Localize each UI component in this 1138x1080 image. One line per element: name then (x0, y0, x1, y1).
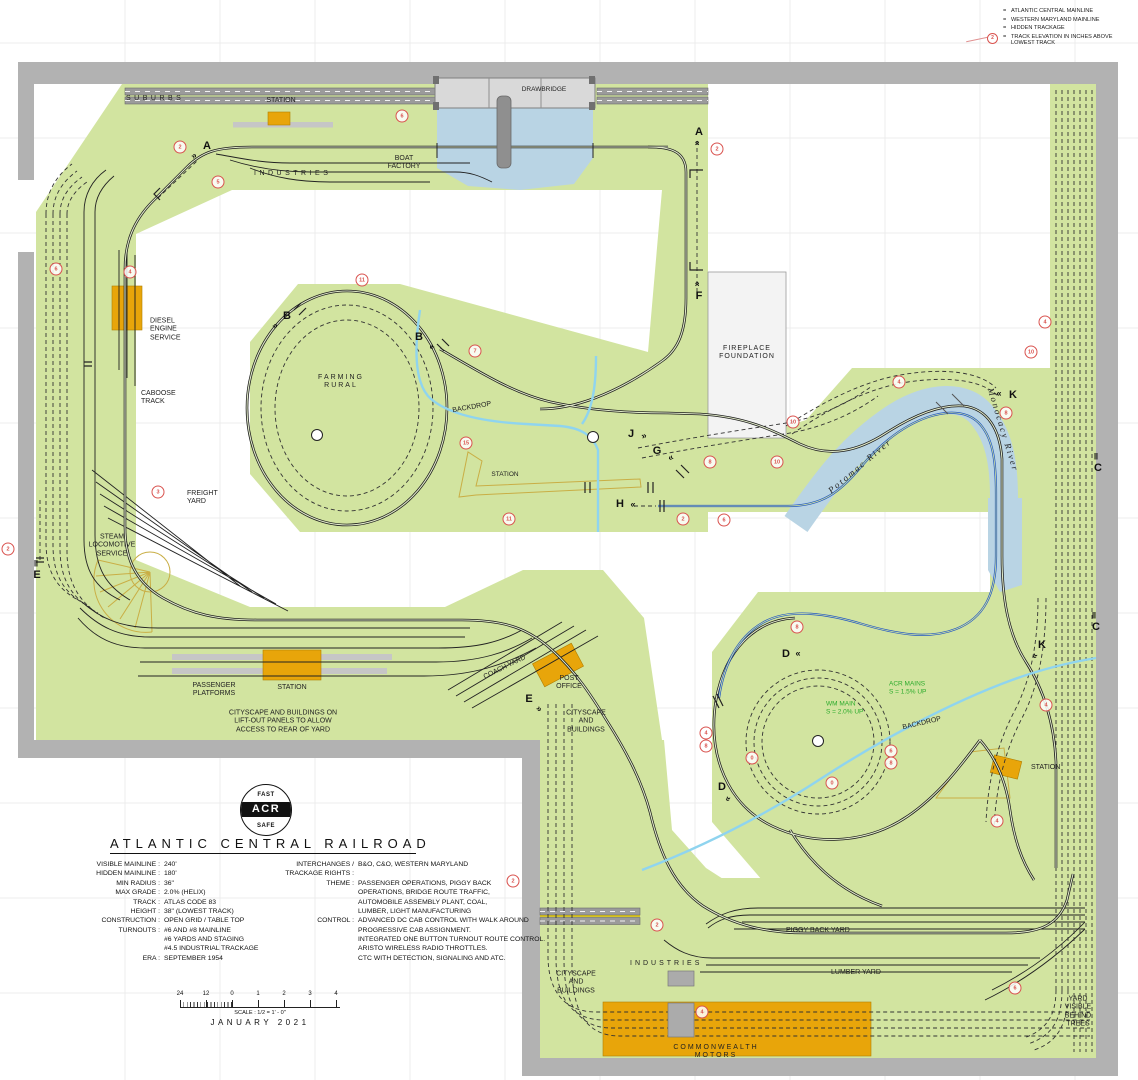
spec-row: INTERCHANGES / TRACKAGE RIGHTS :B&O, C&O… (262, 860, 545, 879)
spec-value: SEPTEMBER 1954 (160, 954, 223, 963)
logo-center-text: ACR (240, 802, 292, 817)
scale-tick: 2 (282, 991, 285, 997)
spec-row: TURNOUTS :#6 AND #8 MAINLINE (42, 926, 258, 935)
spec-row: #6 YARDS AND STAGING (42, 935, 258, 944)
spec-label: CONSTRUCTION : (42, 916, 160, 925)
legend-row-hidden-trackage: = HIDDEN TRACKAGE (966, 25, 1134, 32)
legend-row-track-elevation: 2 = TRACK ELEVATION IN INCHES ABOVE LOWE… (966, 34, 1134, 47)
spec-row: CONTROL :ADVANCED DC CAB CONTROL WITH WA… (262, 916, 545, 963)
scale-tick: 12 (203, 991, 210, 997)
spec-value: 38" (LOWEST TRACK) (160, 907, 234, 916)
spec-row: HEIGHT :38" (LOWEST TRACK) (42, 907, 258, 916)
legend-label: WESTERN MARYLAND MAINLINE (1011, 17, 1099, 23)
spec-label: INTERCHANGES / TRACKAGE RIGHTS : (262, 860, 354, 879)
spec-value: #6 AND #8 MAINLINE (160, 926, 231, 935)
commonwealth-motors-building (603, 1002, 871, 1056)
scale-bar: 241201234 SCALE : 1/2 = 1' - 0" JANUARY … (180, 991, 340, 1027)
spec-row: HIDDEN MAINLINE :180' (42, 869, 258, 878)
scale-tick: 1 (256, 991, 259, 997)
spec-value: B&O, C&O, WESTERN MARYLAND (354, 860, 468, 879)
spec-label: VISIBLE MAINLINE : (42, 860, 160, 869)
scale-tick: 4 (334, 991, 337, 997)
spec-row: MAX GRADE :2.0% (HELIX) (42, 888, 258, 897)
spec-row: ERA :SEPTEMBER 1954 (42, 954, 258, 963)
acr-logo: FAST ACR SAFE (240, 784, 292, 836)
track-plan-canvas: SUBURBSSTATIONINDUSTRIESBOATFACTORYDRAWB… (0, 0, 1138, 1080)
station-top-building (268, 112, 290, 125)
scale-date: JANUARY 2021 (180, 1018, 340, 1027)
spec-value: 240' (160, 860, 177, 869)
legend-row-acr-mainline: = ATLANTIC CENTRAL MAINLINE (966, 8, 1134, 15)
fireplace-foundation (708, 272, 786, 438)
logo-bottom-text: SAFE (241, 823, 291, 829)
spec-label: ERA : (42, 954, 160, 963)
spec-row: #4.5 INDUSTRIAL TRACKAGE (42, 944, 258, 953)
spec-value: PASSENGER OPERATIONS, PIGGY BACK OPERATI… (354, 879, 491, 917)
spec-label: HEIGHT : (42, 907, 160, 916)
legend-row-wm-mainline: = WESTERN MARYLAND MAINLINE (966, 17, 1134, 24)
legend: = ATLANTIC CENTRAL MAINLINE = WESTERN MA… (966, 8, 1134, 48)
acr-mainline-sample-icon (966, 8, 1000, 15)
specs-left: VISIBLE MAINLINE :240'HIDDEN MAINLINE :1… (42, 860, 258, 963)
spec-label: THEME : (262, 879, 354, 917)
spec-value: #4.5 INDUSTRIAL TRACKAGE (160, 944, 258, 953)
spec-row: TRACK :ATLAS CODE 83 (42, 898, 258, 907)
grade-crossings (668, 971, 694, 1037)
scale-tick: 0 (230, 991, 233, 997)
spec-value: ATLAS CODE 83 (160, 898, 216, 907)
scale-ruler (180, 999, 340, 1008)
spec-label: MIN RADIUS : (42, 879, 160, 888)
scale-tick-labels: 241201234 (180, 991, 340, 999)
spec-label (42, 935, 160, 944)
elevation-marker-sample-icon: 2 (966, 34, 1000, 41)
scale-tick: 24 (177, 991, 184, 997)
spec-label: TURNOUTS : (42, 926, 160, 935)
spec-row: VISIBLE MAINLINE :240' (42, 860, 258, 869)
hidden-trackage-sample-icon (966, 25, 1000, 32)
spec-value: 180' (160, 869, 177, 878)
page-title: ATLANTIC CENTRAL RAILROAD (110, 836, 416, 854)
spec-row: THEME :PASSENGER OPERATIONS, PIGGY BACK … (262, 879, 545, 917)
spec-value: #6 YARDS AND STAGING (160, 935, 244, 944)
spec-label: CONTROL : (262, 916, 354, 963)
spec-value: 2.0% (HELIX) (160, 888, 206, 897)
wm-mainline-sample-icon (966, 17, 1000, 24)
scale-tick: 3 (308, 991, 311, 997)
legend-label: HIDDEN TRACKAGE (1011, 25, 1065, 31)
spec-label: HIDDEN MAINLINE : (42, 869, 160, 878)
scale-text: SCALE : 1/2 = 1' - 0" (180, 1010, 340, 1016)
spec-value: OPEN GRID / TABLE TOP (160, 916, 244, 925)
spec-value: 36" (160, 879, 174, 888)
specs-right: INTERCHANGES / TRACKAGE RIGHTS :B&O, C&O… (262, 860, 545, 963)
spec-row: CONSTRUCTION :OPEN GRID / TABLE TOP (42, 916, 258, 925)
legend-label: TRACK ELEVATION IN INCHES ABOVE LOWEST T… (1011, 34, 1134, 47)
spec-label (42, 944, 160, 953)
spec-label: TRACK : (42, 898, 160, 907)
spec-value: ADVANCED DC CAB CONTROL WITH WALK AROUND… (354, 916, 545, 963)
spec-label: MAX GRADE : (42, 888, 160, 897)
legend-label: ATLANTIC CENTRAL MAINLINE (1011, 8, 1093, 14)
spec-row: MIN RADIUS :36" (42, 879, 258, 888)
station-bl-building (263, 650, 321, 680)
bridge-pier (497, 96, 511, 168)
logo-top-text: FAST (241, 792, 291, 798)
